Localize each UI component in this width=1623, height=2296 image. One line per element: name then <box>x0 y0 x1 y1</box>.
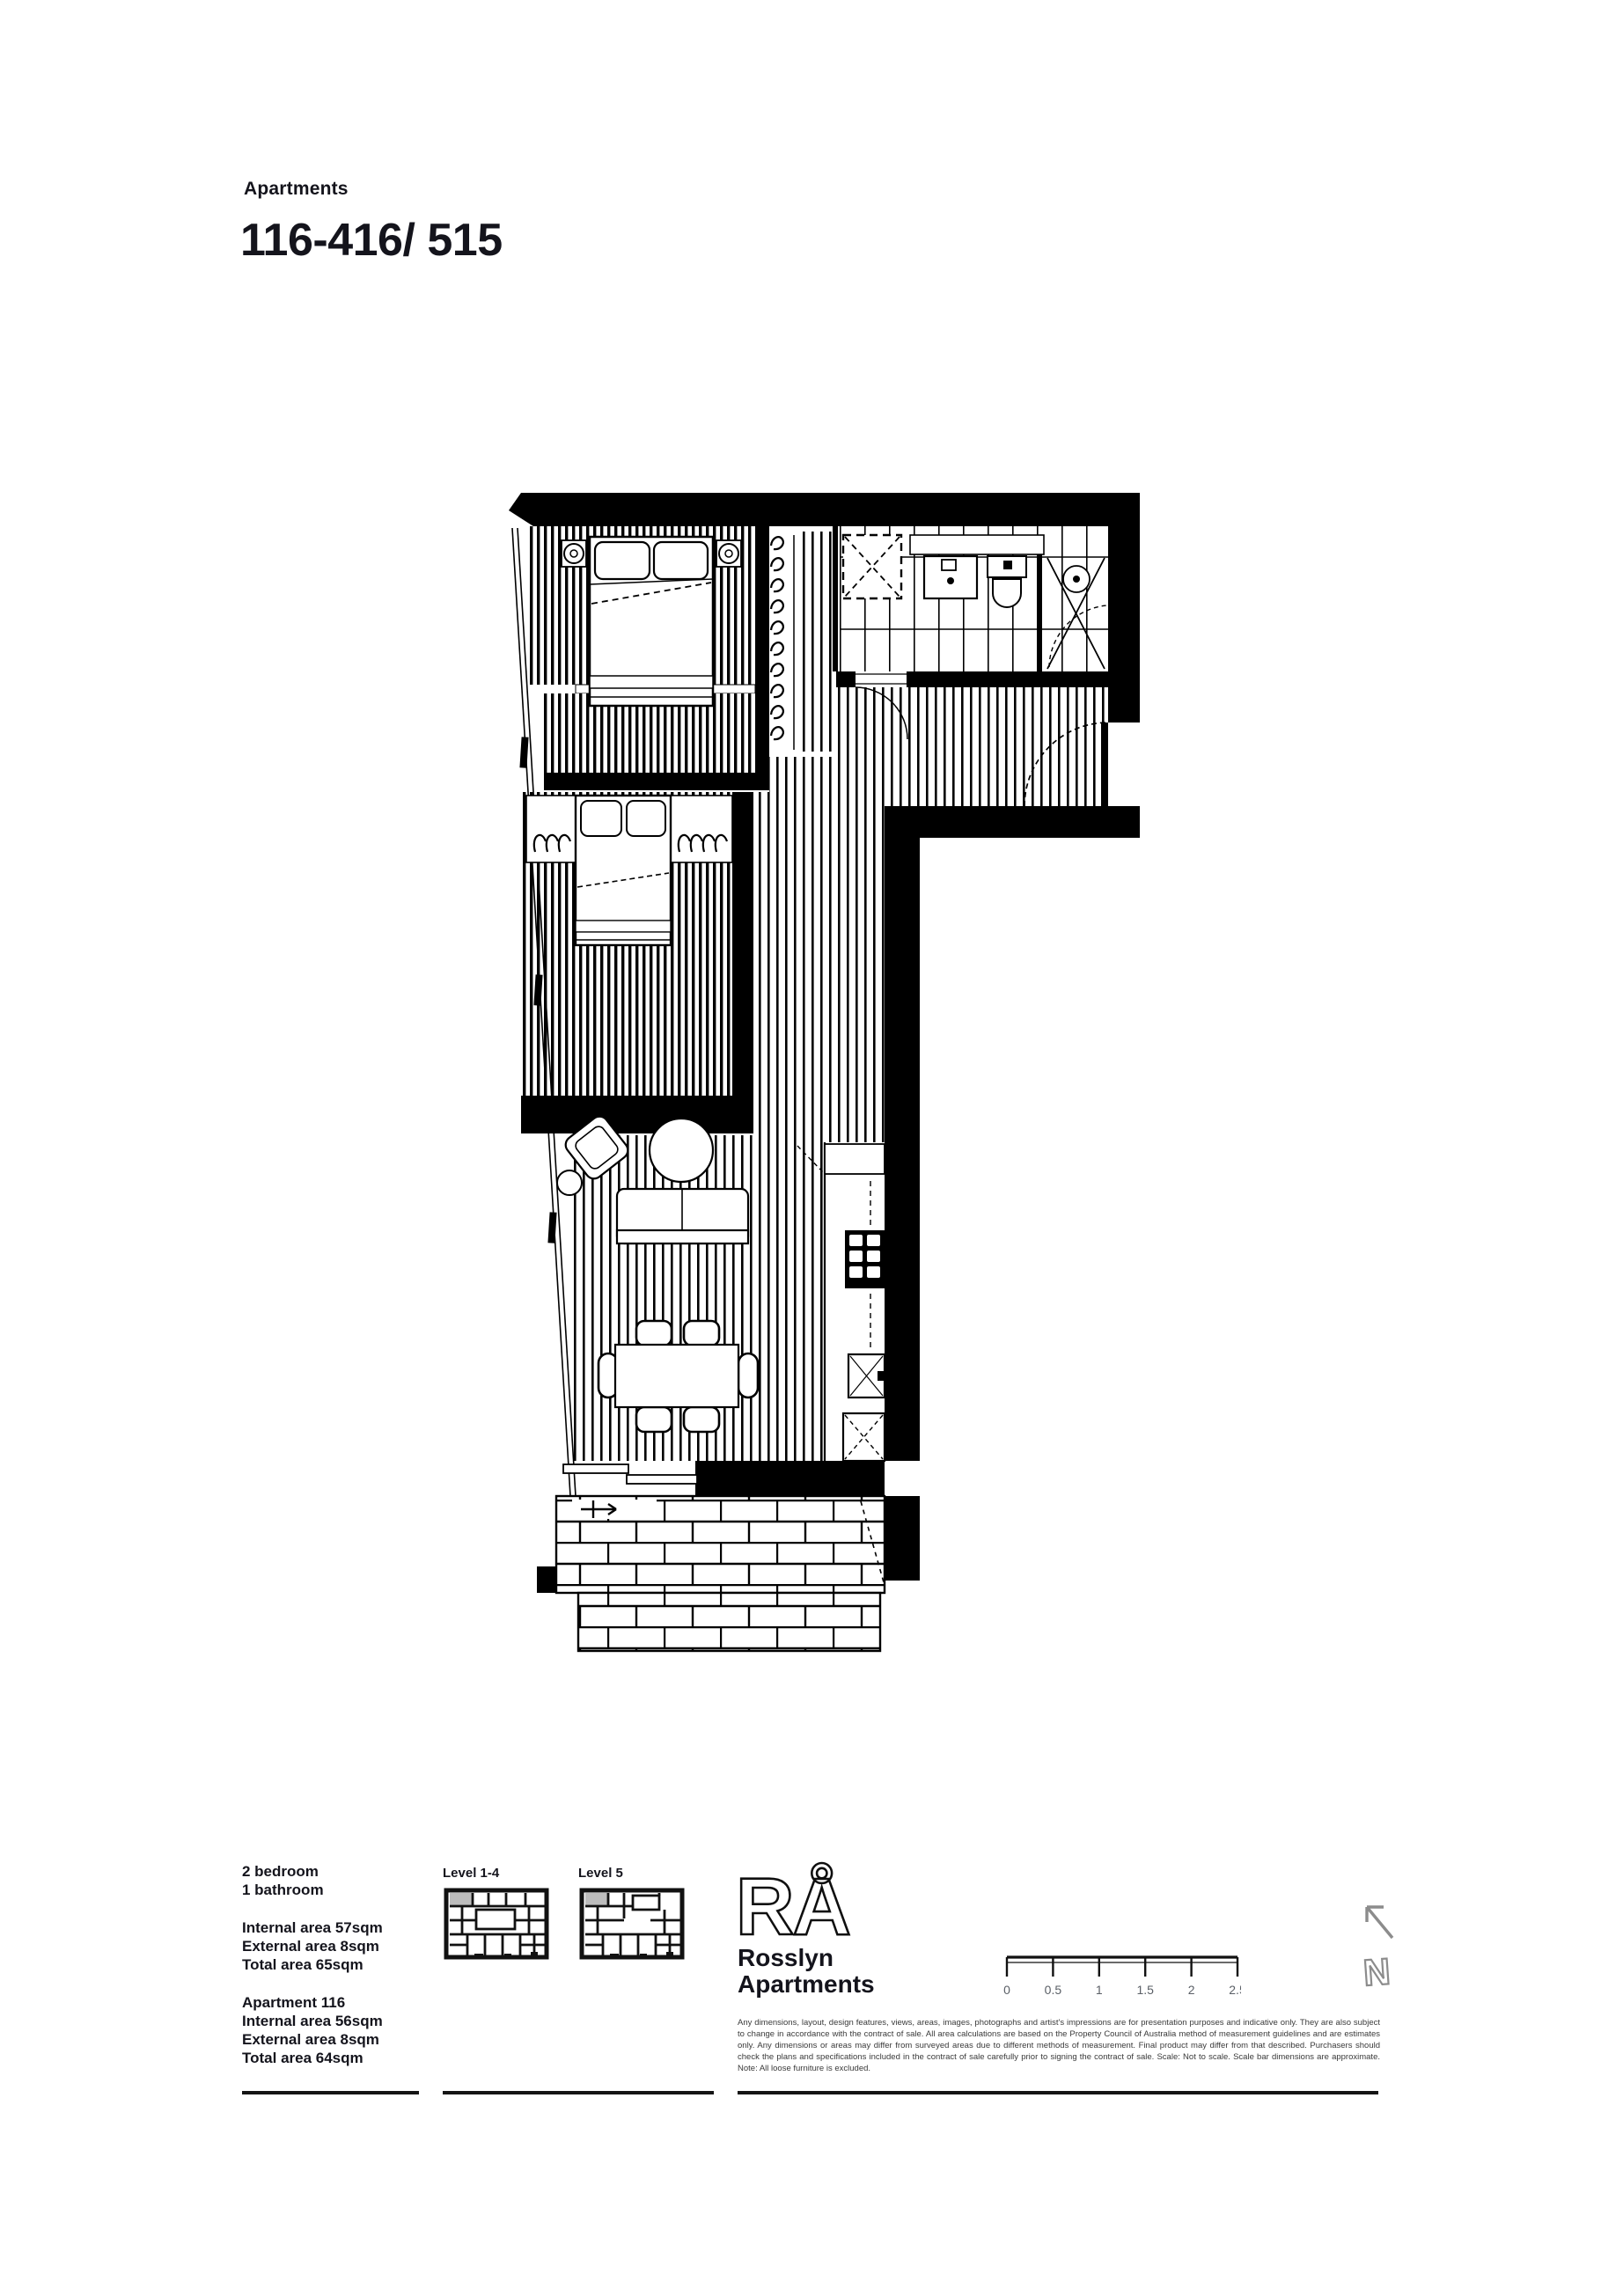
pillow <box>654 542 708 579</box>
brand-logo: RÅ <box>734 1855 875 1947</box>
shower <box>843 535 901 598</box>
dining-chair <box>636 1407 672 1432</box>
divider-rule <box>443 2091 714 2094</box>
vanity-counter <box>910 535 1044 554</box>
dining-chair <box>636 1321 672 1346</box>
north-letter: N <box>1362 1950 1392 1992</box>
floor-plan <box>495 486 1146 1683</box>
divider-rule <box>242 2091 419 2094</box>
side-table <box>557 1170 582 1195</box>
spec-apartment: Apartment 116 <box>242 1993 427 2012</box>
spec-apt-internal: Internal area 56sqm <box>242 2012 427 2030</box>
north-arrow-icon: N <box>1357 1899 1401 1992</box>
entry-opening <box>1108 723 1140 806</box>
scale-tick-label: 0 <box>1003 1983 1010 1997</box>
highlighted-unit <box>450 1893 473 1906</box>
wardrobe <box>526 796 576 862</box>
scale-tick-label: 2.5 <box>1229 1983 1241 1997</box>
spec-apt-external: External area 8sqm <box>242 2030 427 2049</box>
sliding-door-panel <box>563 1464 628 1473</box>
scale-tick-label: 1.5 <box>1136 1983 1154 1997</box>
spec-apt-total: Total area 64sqm <box>242 2049 427 2067</box>
pillow <box>581 801 621 836</box>
dining-chair <box>684 1321 719 1346</box>
scale-tick-label: 1 <box>1096 1983 1103 1997</box>
page-title: 116-416/ 515 <box>240 214 503 267</box>
level-thumbnail-2-image <box>578 1883 686 1962</box>
level-thumbnail-1-image <box>443 1883 550 1962</box>
dining-chair <box>684 1407 719 1432</box>
spec-external: External area 8sqm <box>242 1937 427 1955</box>
eyebrow-label: Apartments <box>244 179 349 200</box>
disclaimer-text: Any dimensions, layout, design features,… <box>738 2017 1380 2074</box>
spec-bedrooms: 2 bedroom <box>242 1862 427 1881</box>
scale-bar: 0 0.5 1 1.5 2 2.5 <box>1003 1952 1241 2003</box>
sliding-door-panel <box>627 1475 697 1484</box>
dining-chair <box>738 1353 758 1397</box>
floorplan-page: Apartments 116-416/ 515 <box>0 0 1623 2296</box>
level-5-label: Level 5 <box>578 1866 623 1881</box>
dining-table <box>615 1345 738 1407</box>
coffee-table <box>650 1119 713 1182</box>
level-1-4-label: Level 1-4 <box>443 1866 499 1881</box>
pillow <box>595 542 650 579</box>
brand-name-line2: Apartments <box>738 1971 875 1998</box>
highlighted-unit <box>585 1893 608 1906</box>
pillow <box>627 801 665 836</box>
wardrobe <box>671 796 732 862</box>
scale-tick-label: 0.5 <box>1045 1983 1062 1997</box>
apartment-specs: 2 bedroom 1 bathroom Internal area 57sqm… <box>242 1862 427 2087</box>
brand-logo-letters: RÅ <box>736 1862 849 1947</box>
brand-name-line1: Rosslyn <box>738 1945 834 1971</box>
spec-total: Total area 65sqm <box>242 1955 427 1974</box>
spec-bathrooms: 1 bathroom <box>242 1881 427 1899</box>
spec-internal: Internal area 57sqm <box>242 1918 427 1937</box>
scale-tick-label: 2 <box>1188 1983 1195 1997</box>
divider-rule <box>738 2091 1378 2094</box>
